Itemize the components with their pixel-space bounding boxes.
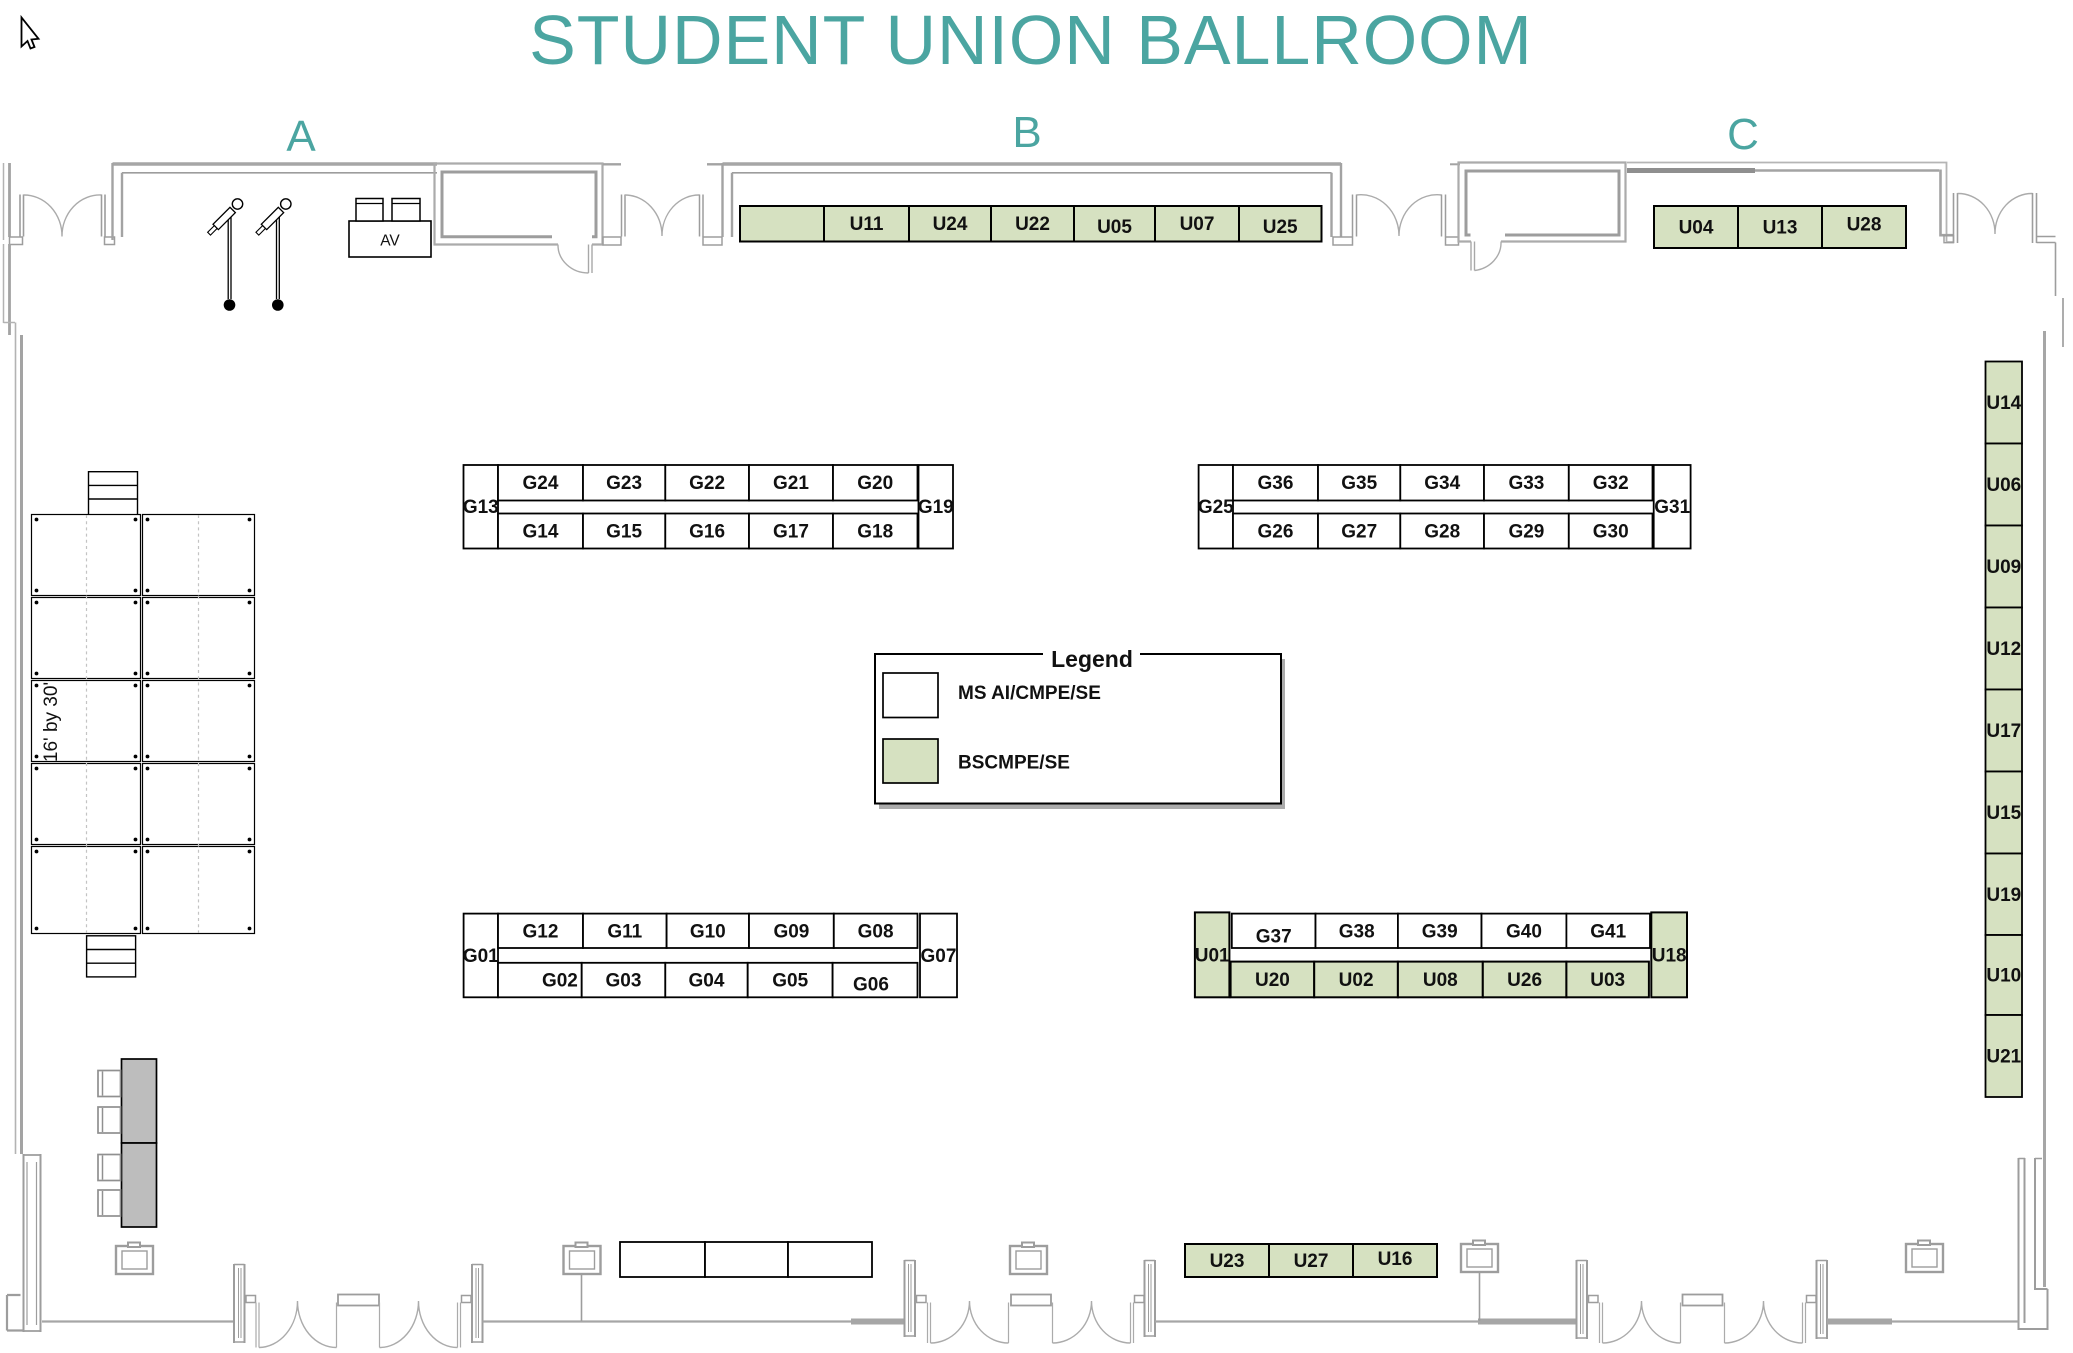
- svg-text:16' by 30': 16' by 30': [41, 682, 62, 762]
- svg-text:U28: U28: [1847, 215, 1882, 236]
- svg-text:G35: G35: [1341, 473, 1377, 494]
- svg-text:U10: U10: [1986, 966, 2021, 987]
- svg-text:G29: G29: [1508, 522, 1544, 543]
- svg-text:U16: U16: [1378, 1249, 1413, 1270]
- svg-text:G09: G09: [773, 921, 809, 942]
- svg-text:G28: G28: [1424, 522, 1460, 543]
- svg-text:AV: AV: [380, 233, 400, 250]
- svg-text:G17: G17: [773, 522, 809, 543]
- svg-text:U21: U21: [1986, 1047, 2021, 1068]
- svg-text:U06: U06: [1986, 475, 2021, 496]
- svg-text:U02: U02: [1339, 970, 1374, 991]
- svg-text:U23: U23: [1210, 1251, 1245, 1272]
- svg-text:G34: G34: [1424, 473, 1460, 494]
- svg-text:U09: U09: [1986, 557, 2021, 578]
- svg-text:G38: G38: [1339, 921, 1375, 942]
- svg-text:G23: G23: [606, 473, 642, 494]
- svg-text:G05: G05: [772, 971, 808, 992]
- svg-text:G10: G10: [690, 921, 726, 942]
- svg-text:U05: U05: [1097, 217, 1132, 238]
- svg-text:G07: G07: [921, 946, 957, 967]
- svg-text:U18: U18: [1652, 945, 1687, 966]
- svg-text:U22: U22: [1015, 214, 1050, 235]
- svg-text:G08: G08: [858, 921, 894, 942]
- svg-text:U26: U26: [1507, 970, 1542, 991]
- svg-text:C: C: [1727, 110, 1759, 159]
- svg-text:G24: G24: [523, 473, 559, 494]
- svg-text:G19: G19: [918, 497, 954, 518]
- svg-text:G31: G31: [1654, 497, 1690, 518]
- svg-text:G12: G12: [523, 921, 559, 942]
- svg-text:A: A: [286, 112, 316, 161]
- svg-text:U27: U27: [1294, 1251, 1329, 1272]
- svg-text:G01: G01: [463, 946, 499, 967]
- svg-text:U08: U08: [1423, 970, 1458, 991]
- svg-text:U14: U14: [1986, 393, 2021, 414]
- svg-text:G16: G16: [689, 522, 725, 543]
- svg-text:G33: G33: [1508, 473, 1544, 494]
- svg-text:U20: U20: [1255, 970, 1290, 991]
- svg-text:G21: G21: [773, 473, 809, 494]
- svg-text:G36: G36: [1258, 473, 1294, 494]
- svg-text:G02: G02: [542, 971, 578, 992]
- svg-text:G25: G25: [1198, 497, 1234, 518]
- svg-text:U11: U11: [850, 214, 884, 235]
- svg-text:Legend: Legend: [1051, 646, 1133, 672]
- svg-text:G32: G32: [1593, 473, 1629, 494]
- svg-text:G41: G41: [1590, 921, 1626, 942]
- svg-text:G22: G22: [689, 473, 725, 494]
- svg-text:U01: U01: [1195, 945, 1230, 966]
- svg-text:G06: G06: [853, 975, 889, 996]
- svg-text:U15: U15: [1986, 803, 2021, 824]
- svg-text:B: B: [1012, 108, 1041, 157]
- svg-text:U03: U03: [1590, 970, 1625, 991]
- svg-text:G14: G14: [523, 522, 559, 543]
- svg-text:U07: U07: [1180, 214, 1215, 235]
- svg-text:G15: G15: [606, 522, 642, 543]
- svg-text:G40: G40: [1506, 921, 1542, 942]
- svg-text:G39: G39: [1422, 921, 1458, 942]
- svg-text:U04: U04: [1679, 218, 1714, 239]
- svg-text:U19: U19: [1986, 885, 2021, 906]
- svg-text:G30: G30: [1593, 522, 1629, 543]
- svg-text:G04: G04: [689, 971, 725, 992]
- svg-text:G27: G27: [1341, 522, 1377, 543]
- svg-text:G11: G11: [607, 921, 642, 942]
- svg-text:BSCMPE/SE: BSCMPE/SE: [958, 753, 1070, 774]
- svg-text:U24: U24: [933, 214, 968, 235]
- svg-text:G03: G03: [606, 971, 642, 992]
- svg-text:U13: U13: [1763, 218, 1798, 239]
- svg-text:G18: G18: [857, 522, 893, 543]
- svg-text:G37: G37: [1256, 926, 1292, 947]
- svg-text:G26: G26: [1258, 522, 1294, 543]
- svg-text:G20: G20: [857, 473, 893, 494]
- svg-text:MS AI/CMPE/SE: MS AI/CMPE/SE: [958, 683, 1101, 704]
- svg-text:U12: U12: [1986, 639, 2021, 660]
- svg-text:STUDENT UNION BALLROOM: STUDENT UNION BALLROOM: [529, 1, 1533, 79]
- svg-text:U17: U17: [1986, 721, 2021, 742]
- svg-text:U25: U25: [1263, 217, 1298, 238]
- svg-text:G13: G13: [463, 497, 499, 518]
